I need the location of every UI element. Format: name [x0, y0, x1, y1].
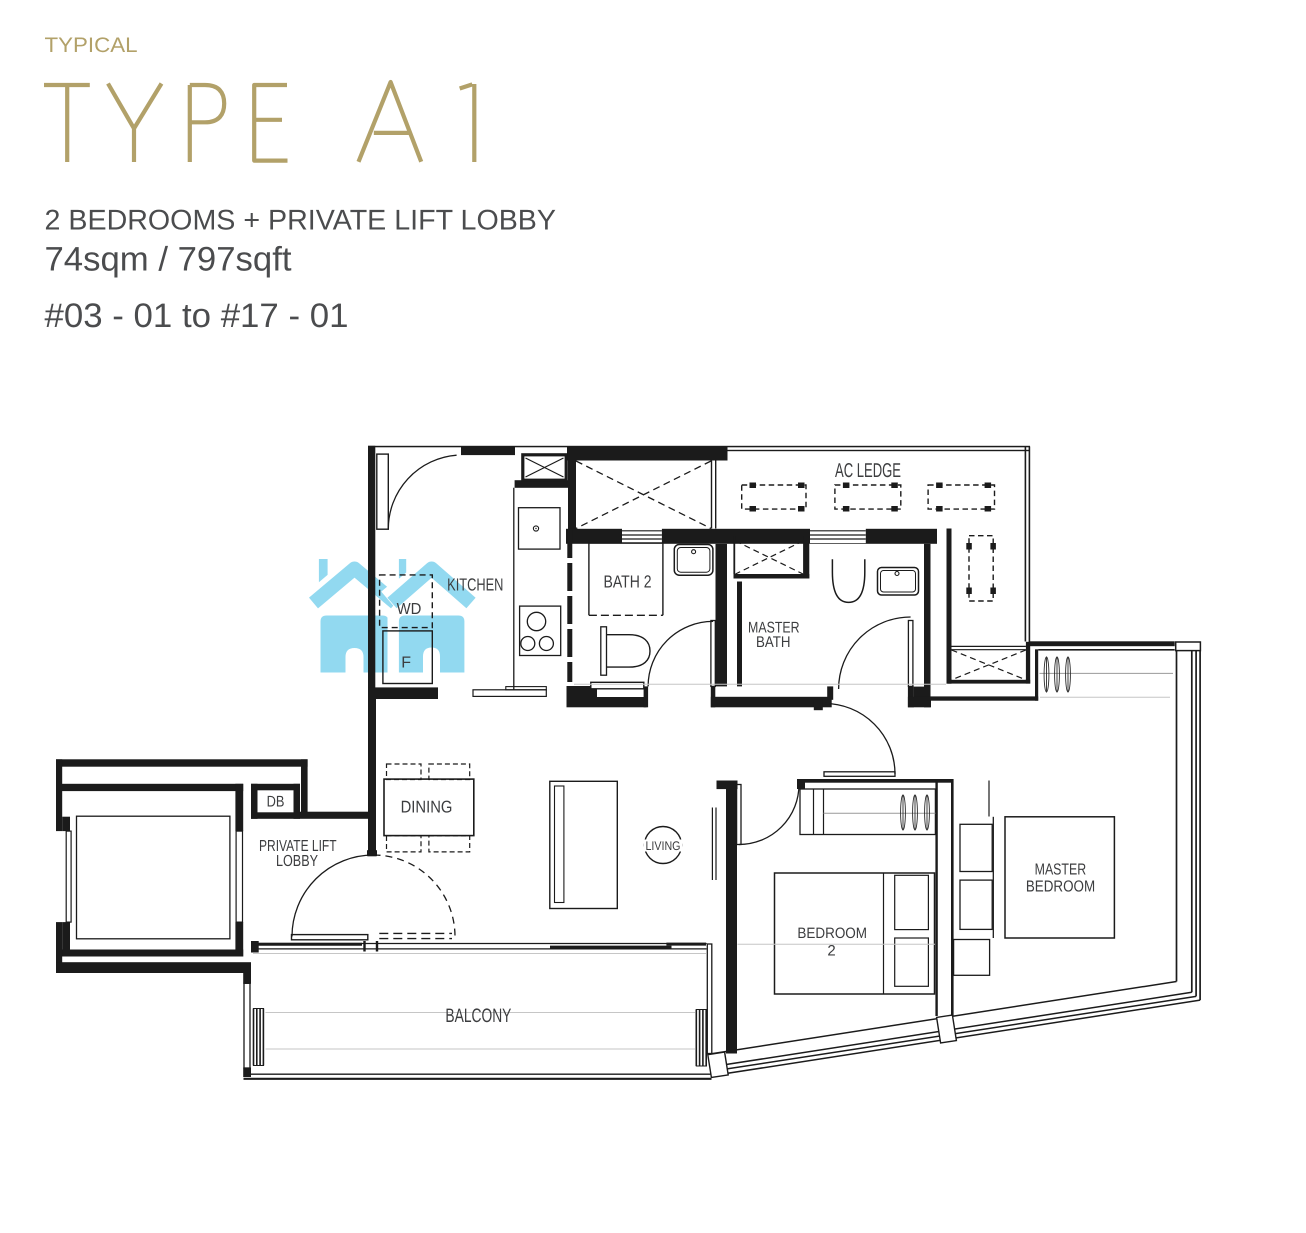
svg-text:2: 2: [827, 943, 835, 960]
svg-text:BEDROOM: BEDROOM: [1026, 878, 1095, 895]
svg-text:TYPICAL: TYPICAL: [45, 34, 138, 57]
svg-text:DB: DB: [267, 794, 285, 811]
svg-text:#03 - 01 to #17 - 01: #03 - 01 to #17 - 01: [45, 297, 349, 335]
svg-text:AC LEDGE: AC LEDGE: [835, 460, 901, 482]
svg-text:BALCONY: BALCONY: [445, 1005, 511, 1027]
svg-text:BEDROOM: BEDROOM: [797, 925, 867, 942]
svg-text:74sqm / 797sqft: 74sqm / 797sqft: [45, 241, 293, 279]
svg-text:LIVING: LIVING: [646, 839, 681, 853]
svg-text:BATH: BATH: [756, 634, 791, 651]
svg-text:WD: WD: [397, 601, 422, 618]
svg-text:DINING: DINING: [401, 798, 453, 817]
svg-text:LOBBY: LOBBY: [276, 853, 318, 870]
svg-text:KITCHEN: KITCHEN: [447, 574, 503, 594]
svg-text:F: F: [401, 655, 411, 672]
svg-text:2 BEDROOMS + PRIVATE LIFT LOBB: 2 BEDROOMS + PRIVATE LIFT LOBBY: [45, 205, 557, 237]
svg-text:MASTER: MASTER: [1035, 862, 1087, 879]
svg-text:BATH 2: BATH 2: [604, 572, 652, 592]
